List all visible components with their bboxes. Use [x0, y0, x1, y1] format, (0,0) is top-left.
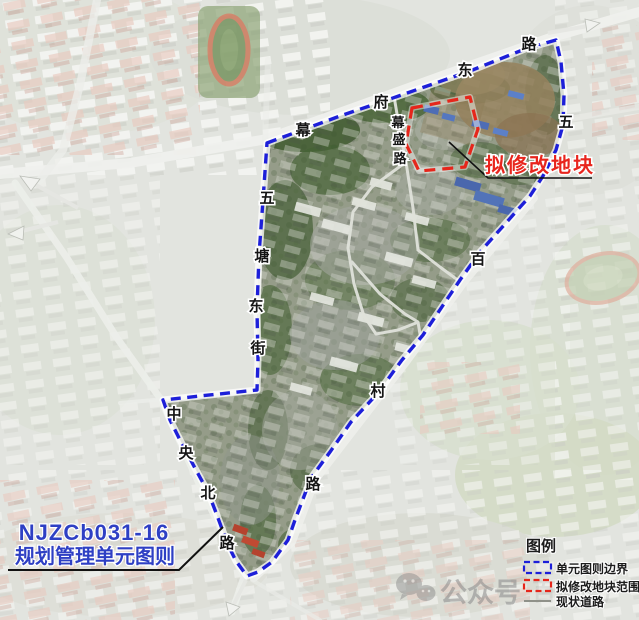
road-label-char: 幕: [294, 121, 311, 139]
legend-label-proposed-plot: 拟修改地块范围: [556, 579, 639, 594]
unit-code-line1: NJZCb031-16: [19, 520, 169, 545]
legend-label-unit-boundary: 单元图则边界: [556, 561, 628, 576]
road-label-char: 街: [249, 339, 265, 357]
watermark-text: 公众号: [440, 578, 521, 608]
road-label-char: 五: [558, 114, 573, 131]
road-label-char: 东: [457, 61, 472, 79]
road-label-char: 央: [178, 444, 194, 462]
unit-code-line2: 规划管理单元图则: [15, 544, 175, 568]
road-label-char: 东: [248, 297, 263, 315]
stadium-top-left: [198, 6, 260, 98]
road-label-char: 路: [521, 35, 537, 53]
road-label-char: 村: [370, 382, 385, 400]
legend-title: 图例: [526, 537, 556, 555]
proposed-plot-label: 拟修改地块: [485, 153, 595, 177]
road-label-char: 幕: [390, 115, 405, 130]
road-label-char: 五: [259, 190, 274, 207]
road-label-char: 百: [470, 251, 485, 268]
road-label-char: 北: [200, 485, 215, 502]
planning-map-svg: 拟修改地块 幕 府 东 路 幕 盛 路 五 百 村 路 五 塘 东 街 中 央 …: [0, 0, 639, 620]
road-label-char: 路: [393, 151, 407, 166]
planning-map-image: 拟修改地块 幕 府 东 路 幕 盛 路 五 百 村 路 五 塘 东 街 中 央 …: [0, 0, 639, 620]
road-label-char: 塘: [254, 247, 269, 265]
road-label-char: 路: [219, 534, 235, 552]
road-label-char: 路: [305, 475, 321, 493]
road-label-char: 中: [166, 405, 181, 423]
road-label-char: 盛: [392, 132, 405, 147]
road-label-char: 府: [373, 93, 388, 111]
legend-label-existing-road: 现状道路: [556, 594, 605, 609]
